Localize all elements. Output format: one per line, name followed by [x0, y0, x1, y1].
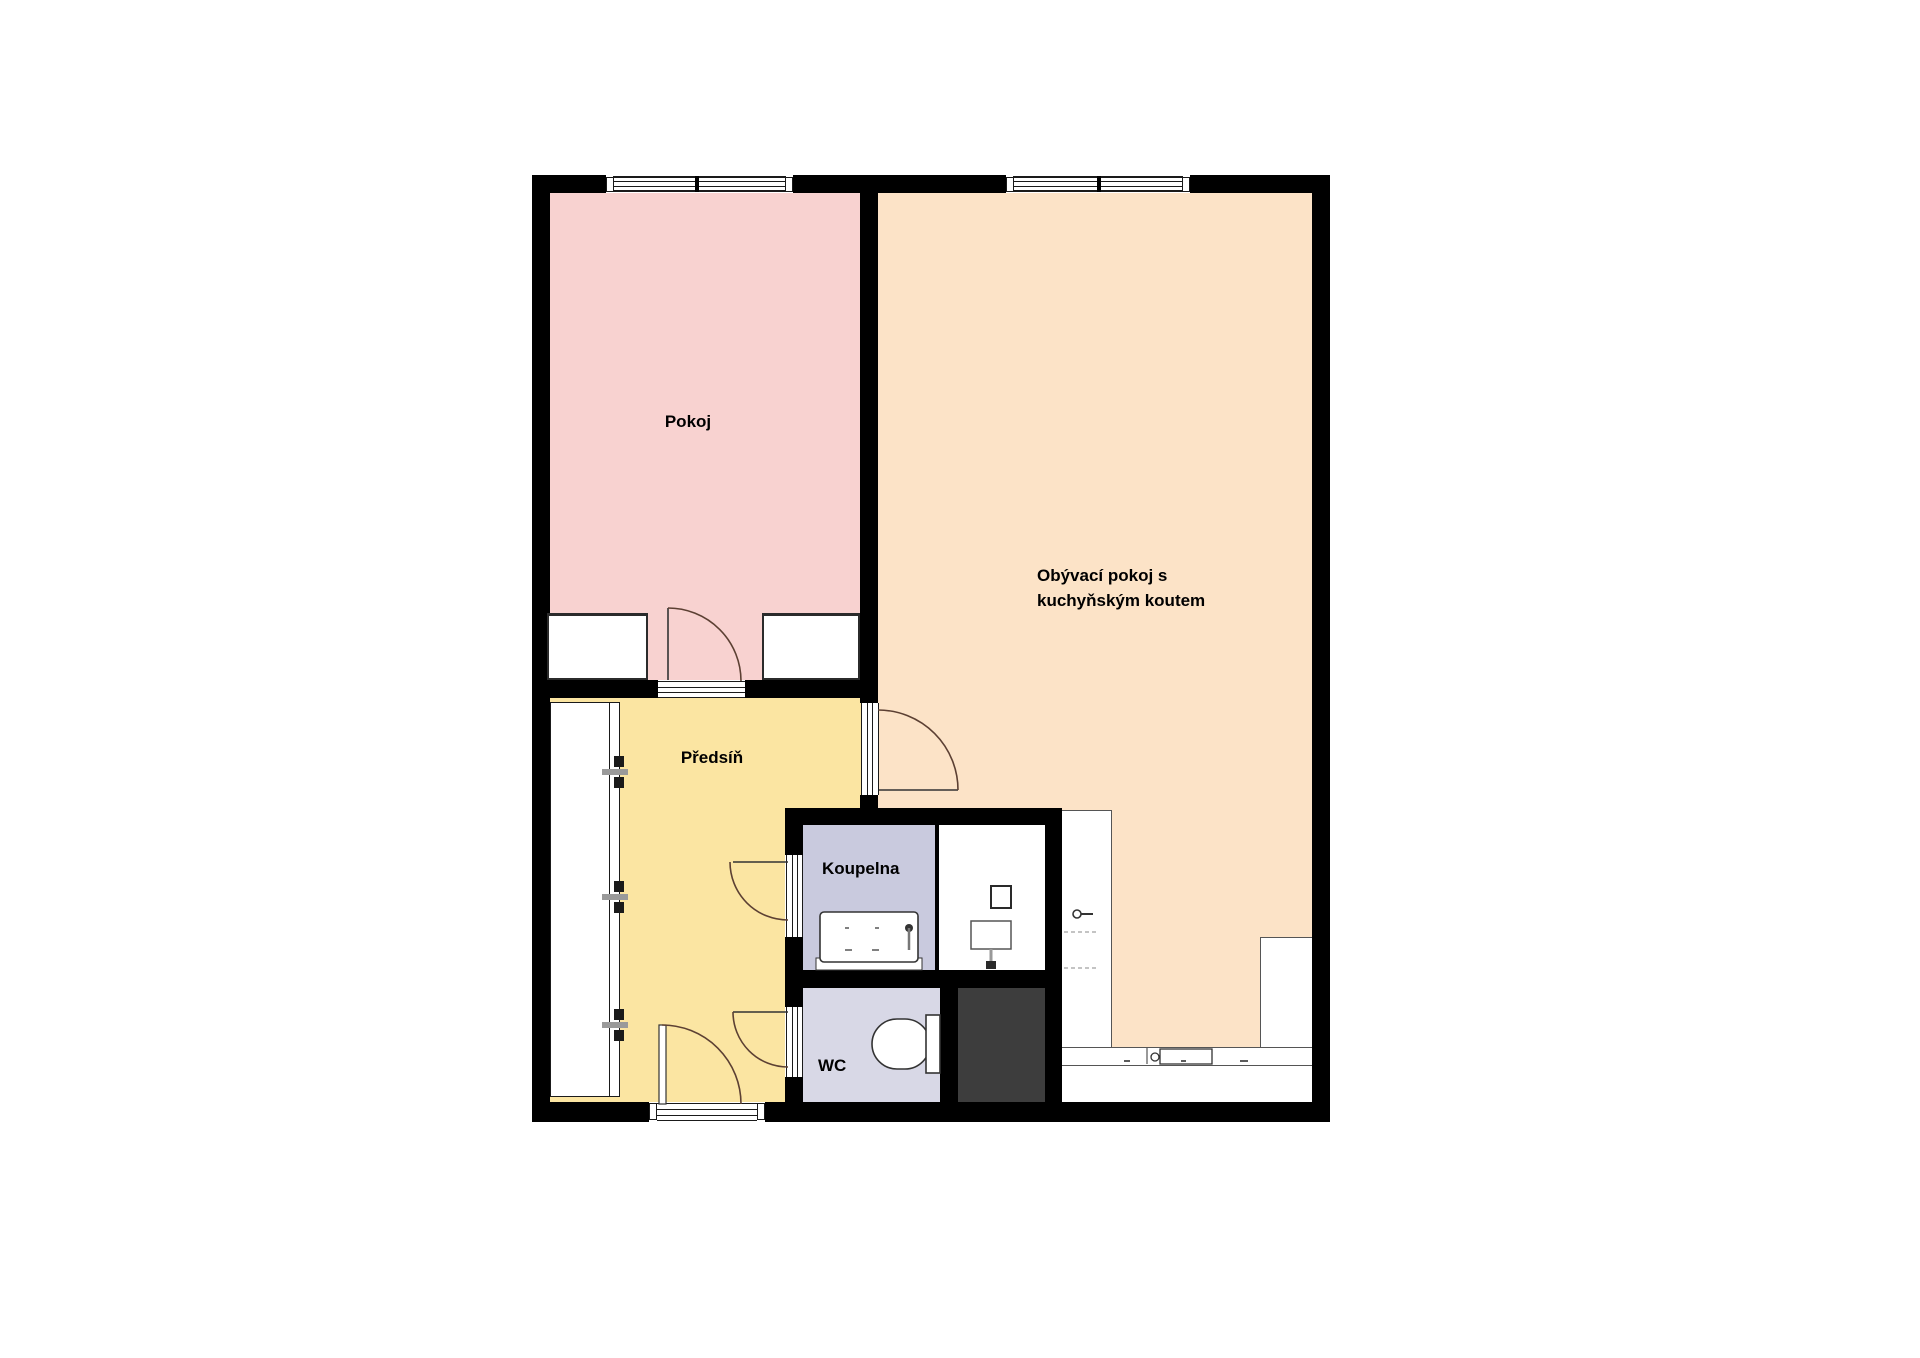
room-label-living-line2: kuchyňským koutem [1037, 588, 1205, 613]
toilet [872, 1015, 940, 1073]
room-label-hall: Předsíň [637, 745, 787, 770]
closet-hinge [602, 1009, 628, 1041]
counter-tick-lines [1064, 932, 1096, 968]
room-label-bath: Koupelna [822, 856, 899, 881]
room-label-living-line1: Obývací pokoj s [1037, 563, 1205, 588]
cooktop [1124, 1048, 1248, 1064]
washing-machine [991, 886, 1011, 908]
wc-door-swing [733, 1012, 788, 1067]
fixtures-overlay [0, 0, 1920, 1358]
entry-door-swing [659, 1025, 741, 1104]
bath-door-swing [730, 862, 788, 920]
pokoj-door-swing [668, 608, 741, 681]
room-label-living: Obývací pokoj s kuchyňským koutem [1037, 563, 1205, 613]
utility-sink [971, 921, 1011, 969]
closet-hinge [602, 881, 628, 913]
room-label-pokoj: Pokoj [613, 409, 763, 434]
bathtub [816, 912, 922, 970]
room-label-wc: WC [818, 1053, 846, 1078]
kitchen-faucet [1073, 910, 1093, 918]
living-door-swing [878, 710, 958, 790]
floor-plan: Pokoj Obývací pokoj s kuchyňským koutem … [0, 0, 1920, 1358]
closet-hinge [602, 756, 628, 788]
